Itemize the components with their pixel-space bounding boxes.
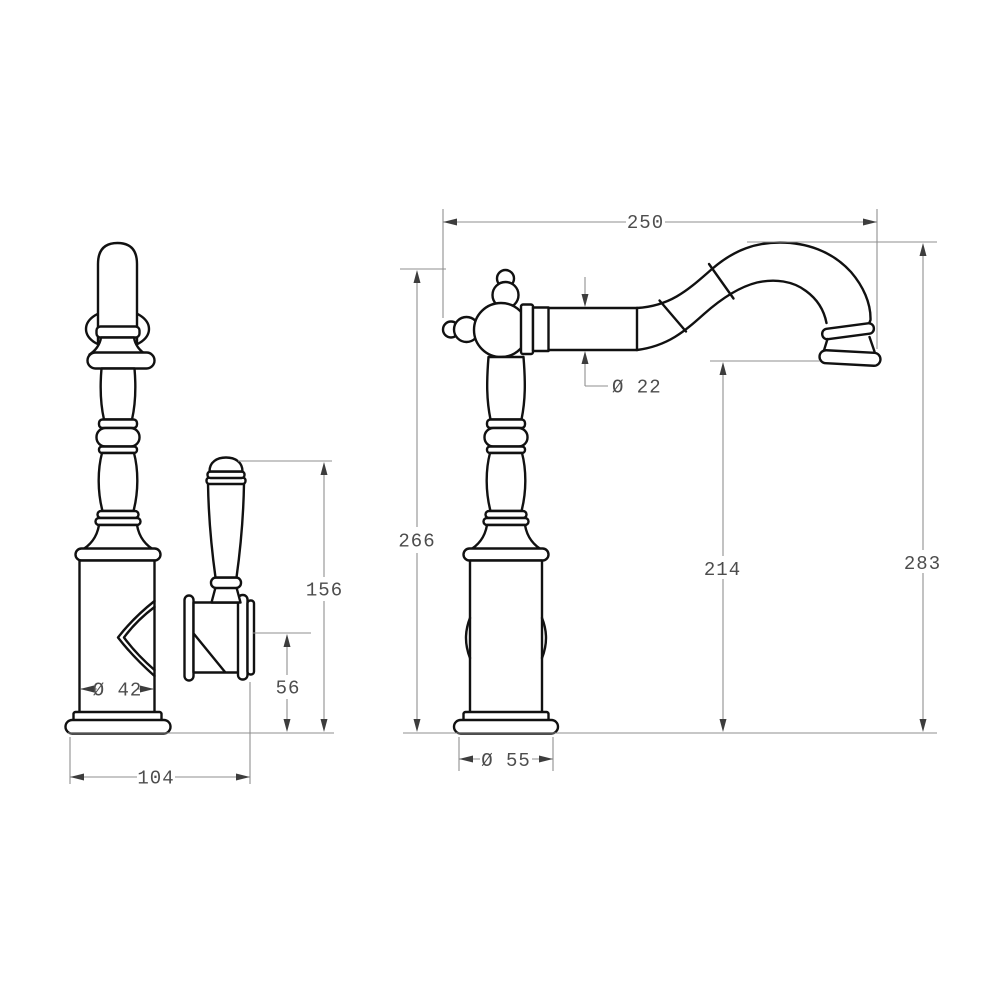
drawing-sheet: 250 Ø 22 266 214 xyxy=(0,0,1000,1000)
dimension-base-diameter-label: Ø 55 xyxy=(481,750,531,772)
outlet-ring xyxy=(822,323,875,340)
outlet-ring-group xyxy=(822,323,875,340)
side-view-drawing xyxy=(66,243,255,734)
neck-band-1 xyxy=(487,420,525,429)
spout-curve-outer xyxy=(637,243,871,332)
handle-stem xyxy=(212,588,241,603)
dimension-outlet-height: 214 xyxy=(704,361,820,732)
dimension-outlet-height-label: 214 xyxy=(704,559,741,581)
handle-dome xyxy=(210,458,243,472)
dimension-valve-center-height-label: 56 xyxy=(276,678,301,700)
body-trumpet xyxy=(468,525,544,551)
spout-seam-2 xyxy=(709,264,734,299)
dimension-overall-depth-label: 104 xyxy=(137,768,174,790)
dimension-height-to-hub-top-label: 266 xyxy=(398,531,435,553)
dimension-body-diameter-label: Ø 42 xyxy=(93,680,143,702)
base-foot xyxy=(66,720,171,734)
spout-seam-1 xyxy=(660,301,687,332)
base-foot xyxy=(454,720,558,734)
front-view-drawing xyxy=(443,243,881,734)
spout-collar-band xyxy=(97,327,140,338)
dimension-base-diameter: Ø 55 xyxy=(459,737,553,772)
outlet-flare-right xyxy=(870,337,875,352)
neck-bead xyxy=(97,428,140,447)
outlet-foot xyxy=(819,350,881,366)
valve-end-cap xyxy=(248,601,255,675)
body-top-band xyxy=(76,549,161,561)
handle-grip xyxy=(208,484,244,578)
dimension-spout-tube-diameter: Ø 22 xyxy=(582,277,662,399)
neck-upper xyxy=(487,357,525,420)
spout-connector-flange xyxy=(521,305,533,355)
dimension-handle-top-height-label: 156 xyxy=(306,580,343,602)
body-cylinder xyxy=(470,561,542,713)
dimension-valve-center-height: 56 xyxy=(253,633,311,732)
body-top-band xyxy=(464,549,549,561)
body-trumpet xyxy=(80,525,156,551)
neck-bead xyxy=(485,428,528,447)
valve-flange-right xyxy=(238,595,248,680)
valve-flange-left xyxy=(185,596,194,681)
neck-lower xyxy=(99,453,138,511)
spout-connector-socket xyxy=(533,308,549,352)
dimension-overall-height: 283 xyxy=(747,242,941,732)
handle-stem-ring xyxy=(211,578,241,589)
dimension-height-to-hub-top: 266 xyxy=(398,269,446,732)
neck-upper xyxy=(101,369,136,420)
technical-drawing-canvas: 250 Ø 22 266 214 xyxy=(0,0,1000,1000)
dimension-spout-tube-diameter-label: Ø 22 xyxy=(612,377,662,399)
neck-band-1 xyxy=(99,420,137,429)
dimension-overall-height-label: 283 xyxy=(904,553,941,575)
outlet-foot-group xyxy=(819,350,881,366)
neck-lower xyxy=(487,453,526,511)
dimension-spout-reach-label: 250 xyxy=(627,212,664,234)
spout-curve-inner xyxy=(637,281,827,350)
spout-base-torus xyxy=(88,353,155,369)
